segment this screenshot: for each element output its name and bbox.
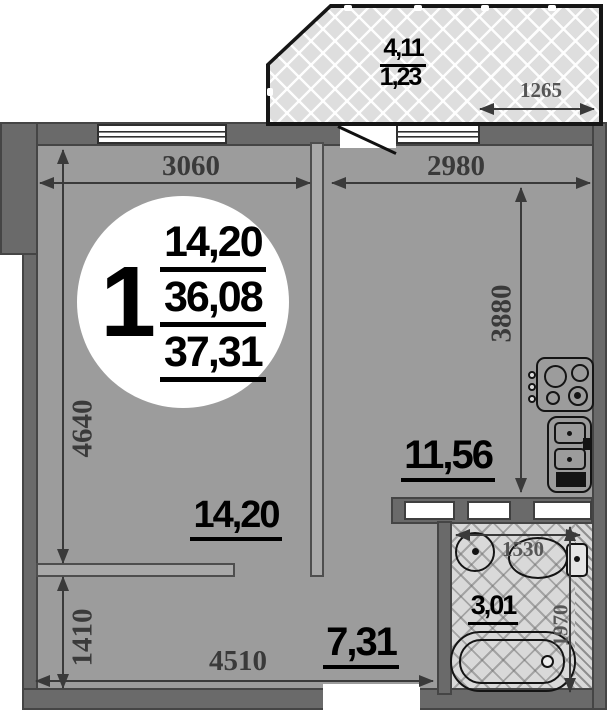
stove-knob-icon	[528, 383, 536, 391]
entrance-door-opening	[323, 684, 420, 714]
washbasin-drain-icon	[472, 548, 479, 555]
faucet-icon	[583, 438, 591, 450]
living-room-window	[97, 124, 227, 144]
wall-bathroom-left	[437, 521, 452, 695]
glazing-marker-icon	[548, 5, 556, 11]
badge-living-area: 14,20	[160, 220, 266, 272]
wall-living-kitchen	[310, 142, 324, 577]
door-opening-right	[533, 501, 592, 520]
dimension-line-balcony-width	[480, 108, 594, 110]
stove-burner-center-icon	[574, 392, 581, 399]
door-opening-middle	[467, 501, 511, 520]
wall-left-upper	[0, 122, 38, 255]
rooms-count: 1	[100, 252, 152, 352]
bathtub-drain-icon	[541, 655, 554, 668]
dimension-line-hallway-width	[36, 680, 433, 682]
sink-drain-icon	[567, 431, 572, 436]
glazing-marker-icon	[414, 5, 422, 11]
floor-plan: 3060 2980 4640 3880 1410 4510 1265 1530 …	[0, 0, 607, 718]
toilet-tank-button-icon	[574, 556, 580, 562]
wall-living-hall-partition	[36, 563, 235, 577]
glazing-marker-icon	[481, 5, 489, 11]
dimension-line-living-height	[62, 150, 64, 563]
sink-drain-icon	[567, 457, 572, 462]
stove-knob-icon	[528, 395, 536, 403]
door-opening-left	[404, 501, 455, 520]
unit-summary-badge: 1 14,20 36,08 37,31	[77, 196, 289, 408]
counter-block-icon	[556, 472, 586, 487]
stove-burner-icon	[544, 365, 567, 388]
badge-overall-area: 37,31	[160, 330, 266, 382]
balcony-floor	[270, 8, 599, 122]
stove-burner-icon	[546, 391, 560, 405]
area-stack: 14,20 36,08 37,31	[160, 220, 266, 385]
glazing-marker-icon	[267, 88, 273, 96]
dimension-line-kitchen-height	[520, 188, 522, 492]
kitchen-window	[396, 124, 480, 144]
wall-right	[592, 122, 607, 710]
stove-burner-icon	[571, 364, 589, 382]
dimension-line-hallway-height	[62, 577, 64, 688]
stove-knob-icon	[528, 371, 536, 379]
glazing-marker-icon	[344, 5, 352, 11]
badge-total-area: 36,08	[160, 275, 266, 327]
wall-left-lower	[22, 253, 38, 710]
